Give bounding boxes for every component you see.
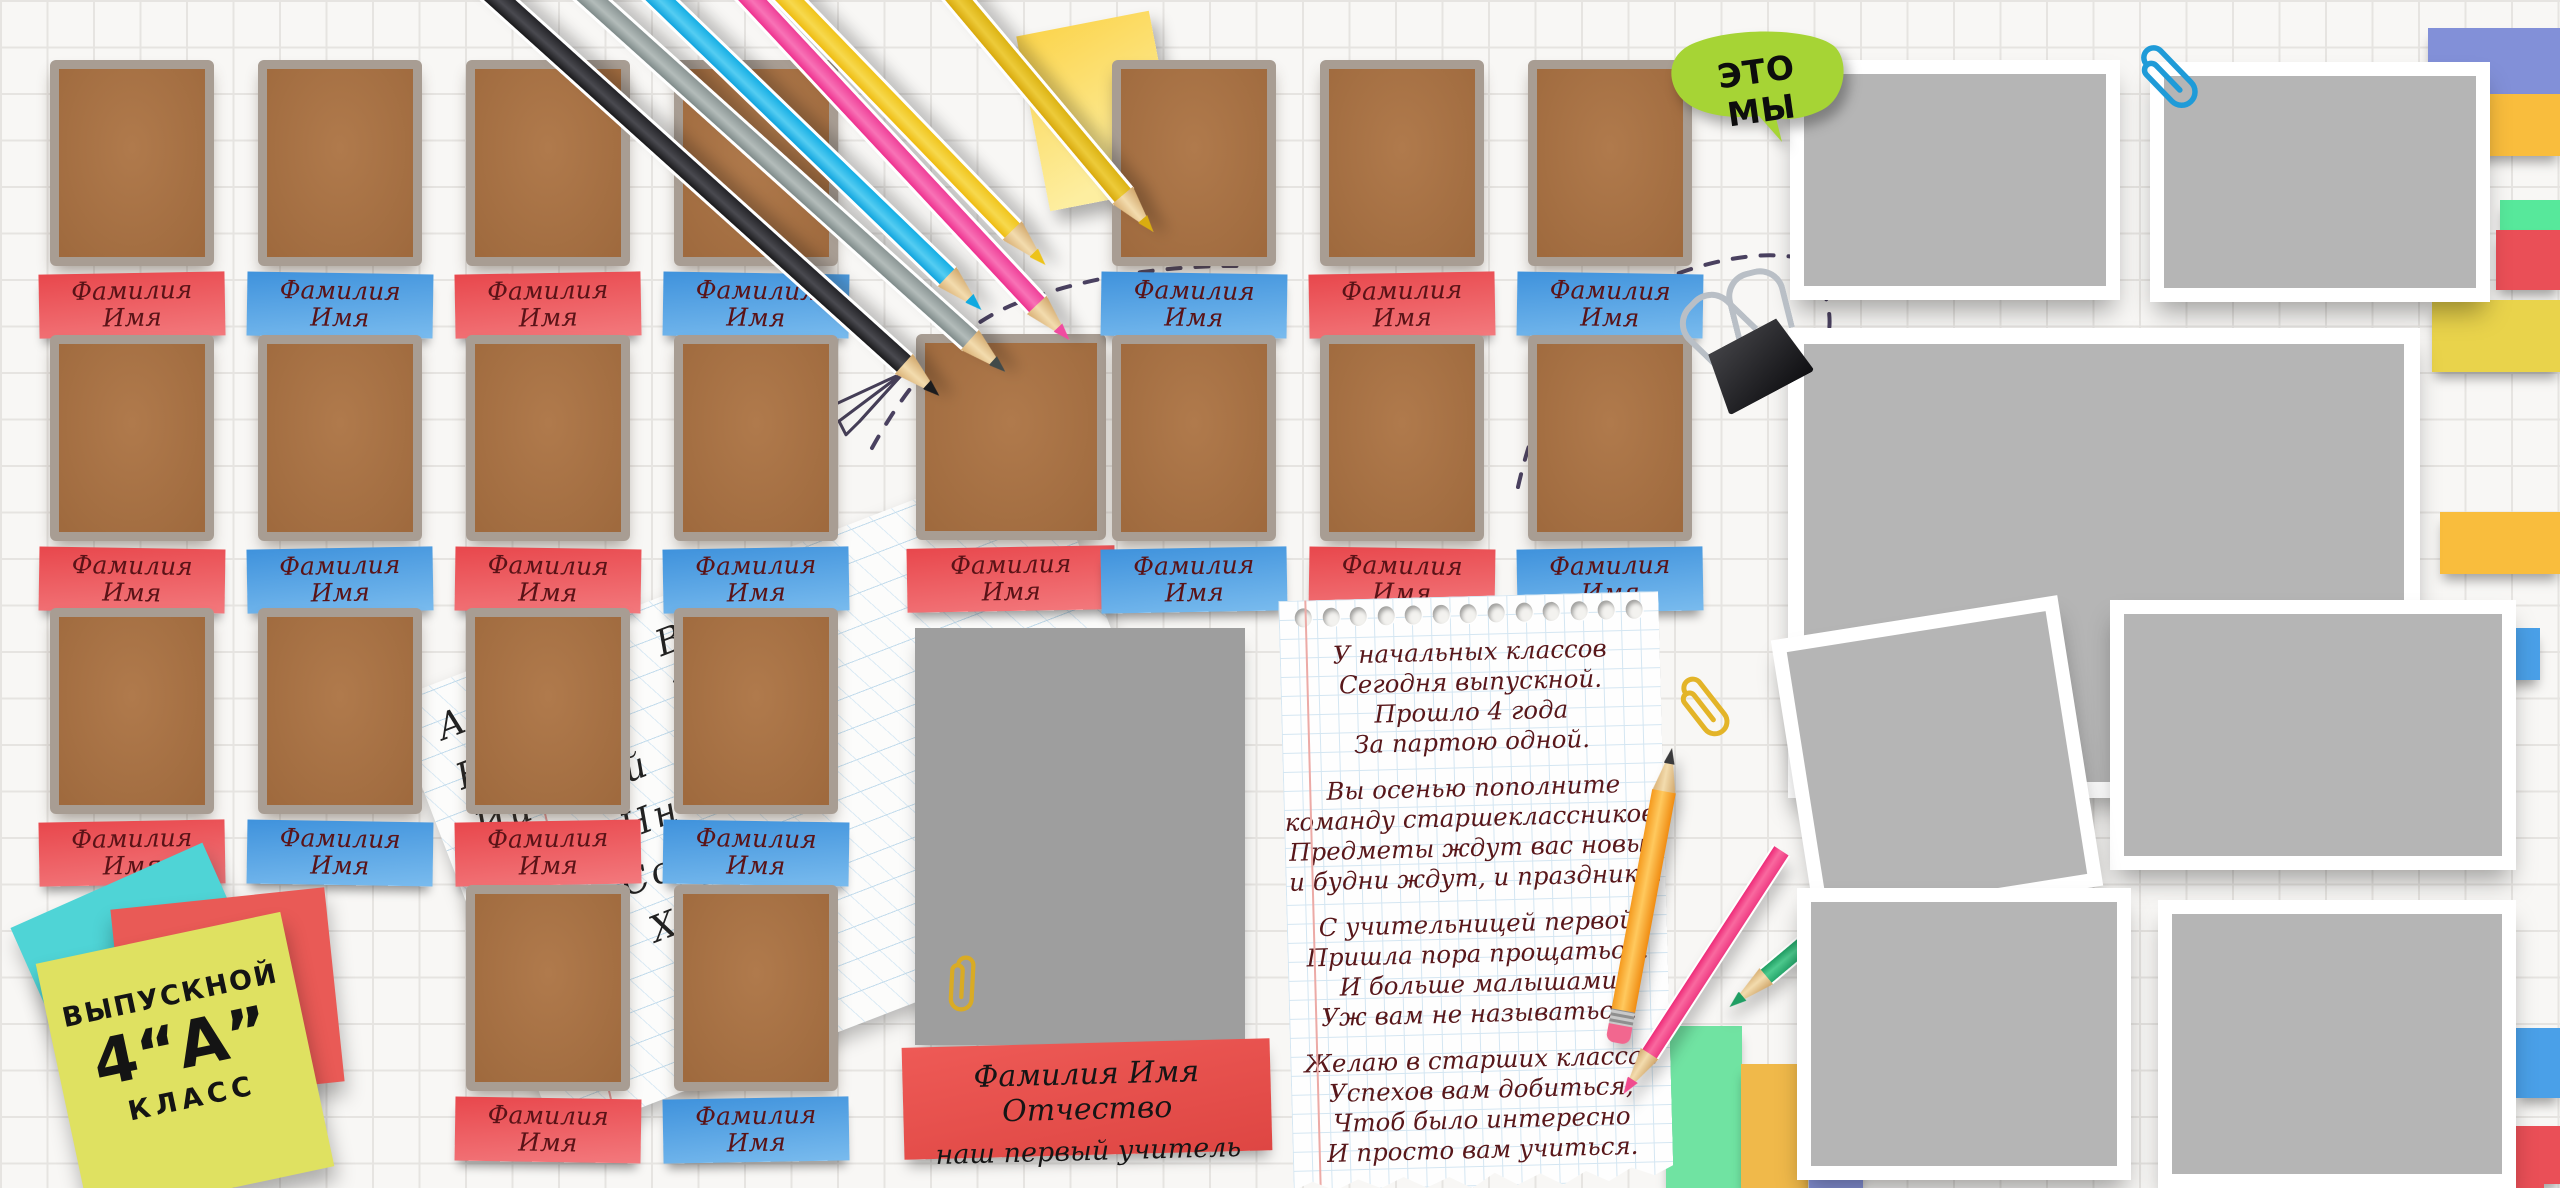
class-photo-placeholder[interactable] (1811, 902, 2117, 1166)
student-surname: Фамилия (663, 550, 849, 580)
student-photo-placeholder[interactable] (674, 885, 838, 1091)
student-name-tag[interactable]: ФамилияИмя (38, 271, 225, 338)
student-name-tag[interactable]: ФамилияИмя (906, 545, 1115, 613)
student-name: Имя (39, 302, 225, 332)
student-photo-placeholder[interactable] (466, 885, 630, 1091)
index-tab-orange (2440, 512, 2560, 574)
student-name: Имя (663, 851, 849, 881)
student-name-tag[interactable]: ФамилияИмя (662, 546, 849, 613)
student-photo-placeholder[interactable] (1112, 335, 1276, 541)
student-name: Имя (455, 302, 641, 332)
student-surname: Фамилия (663, 824, 849, 854)
student-surname: Фамилия (455, 1101, 641, 1131)
student-surname: Фамилия (455, 823, 641, 853)
student-name: Имя (1309, 302, 1495, 332)
student-photo-slot[interactable]: ФамилияИмя (258, 608, 422, 885)
class-photo-placeholder[interactable] (2164, 76, 2476, 288)
student-surname: Фамилия (1517, 276, 1703, 306)
class-photo-placeholder[interactable] (2172, 914, 2502, 1174)
student-name: Имя (247, 851, 433, 881)
student-surname: Фамилия (39, 551, 225, 581)
student-surname: Фамилия (455, 275, 641, 305)
student-name-tag[interactable]: ФамилияИмя (454, 271, 641, 338)
student-photo-slot[interactable]: ФамилияИмя (674, 335, 838, 612)
poem-stanza: Желаю в старших классах Успехов вам доби… (1290, 1040, 1673, 1170)
student-surname: Фамилия (39, 275, 225, 305)
class-photo-frame-tilted[interactable] (1771, 595, 2103, 931)
student-surname: Фамилия (663, 1100, 849, 1130)
student-photo-placeholder[interactable] (50, 608, 214, 814)
poem-stanza: У начальных классов Сегодня выпускной. П… (1279, 632, 1662, 762)
student-name: Имя (247, 577, 433, 607)
student-photo-placeholder[interactable] (258, 608, 422, 814)
poem-stanza: Вы осенью пополните команду старшеклассн… (1283, 768, 1666, 898)
index-tab-green (2500, 200, 2560, 230)
student-photo-placeholder[interactable] (674, 335, 838, 541)
poem-text: У начальных классов Сегодня выпускной. П… (1279, 632, 1673, 1170)
class-photo-frame[interactable] (2158, 900, 2516, 1188)
student-name-tag[interactable]: ФамилияИмя (662, 1096, 849, 1163)
student-surname: Фамилия (1101, 276, 1287, 306)
student-photo-slot[interactable]: ФамилияИмя (674, 608, 838, 885)
student-photo-slot[interactable]: ФамилияИмя (916, 334, 1106, 611)
student-photo-placeholder[interactable] (1112, 60, 1276, 266)
student-name: Имя (247, 303, 433, 333)
student-surname: Фамилия (247, 550, 433, 580)
student-name-tag[interactable]: ФамилияИмя (247, 820, 434, 887)
student-name: Имя (39, 578, 225, 608)
student-photo-slot[interactable]: ФамилияИмя (1320, 335, 1484, 612)
student-name-tag[interactable]: ФамилияИмя (1100, 546, 1287, 613)
class-photo-frame[interactable] (1797, 888, 2131, 1180)
student-name-tag[interactable]: ФамилияИмя (247, 272, 434, 339)
student-photo-placeholder[interactable] (1320, 335, 1484, 541)
student-photo-placeholder[interactable] (466, 335, 630, 541)
student-photo-slot[interactable]: ФамилияИмя (466, 608, 630, 885)
student-name: Имя (1101, 303, 1287, 333)
student-name-tag[interactable]: ФамилияИмя (39, 547, 226, 614)
index-tab-green (1666, 1026, 1742, 1188)
student-name: Имя (1101, 577, 1287, 607)
student-name: Имя (455, 1128, 641, 1158)
student-photo-placeholder[interactable] (50, 335, 214, 541)
student-name: Имя (663, 577, 849, 607)
student-photo-slot[interactable]: ФамилияИмя (674, 885, 838, 1162)
teacher-full-name: Фамилия Имя Отчество (902, 1052, 1272, 1132)
student-photo-slot[interactable]: ФамилияИмя (50, 60, 214, 337)
student-name-tag[interactable]: ФамилияИмя (455, 547, 642, 614)
student-name: Имя (907, 576, 1115, 607)
student-surname: Фамилия (907, 549, 1115, 580)
student-photo-slot[interactable]: ФамилияИмя (466, 885, 630, 1162)
student-surname: Фамилия (247, 824, 433, 854)
paperclip-icon (944, 937, 983, 1029)
student-photo-placeholder[interactable] (50, 60, 214, 266)
class-photo-frame[interactable] (2110, 600, 2516, 870)
student-surname: Фамилия (1101, 550, 1287, 580)
student-photo-placeholder[interactable] (674, 608, 838, 814)
student-photo-placeholder[interactable] (1528, 335, 1692, 541)
student-surname: Фамилия (455, 551, 641, 581)
class-photo-placeholder[interactable] (1787, 611, 2087, 915)
index-tab-red (2516, 1126, 2560, 1184)
index-tab-blue (2516, 1028, 2560, 1098)
student-surname: Фамилия (1517, 550, 1703, 580)
student-photo-slot[interactable]: ФамилияИмя (258, 60, 422, 337)
student-photo-slot[interactable]: ФамилияИмя (50, 335, 214, 612)
student-name: Имя (663, 1127, 849, 1157)
student-name-tag[interactable]: ФамилияИмя (1101, 272, 1288, 339)
student-photo-placeholder[interactable] (466, 608, 630, 814)
student-photo-placeholder[interactable] (1320, 60, 1484, 266)
student-photo-placeholder[interactable] (258, 335, 422, 541)
album-spread: Аа Бб Вв Зз Ее Ёё Жж Ии Йй Лл Мм Нн Рр С… (0, 0, 2560, 1188)
class-photo-placeholder[interactable] (2124, 614, 2502, 856)
student-name-tag[interactable]: ФамилияИмя (454, 819, 641, 886)
student-name-tag[interactable]: ФамилияИмя (1308, 271, 1495, 338)
student-name: Имя (455, 578, 641, 608)
student-photo-placeholder[interactable] (258, 60, 422, 266)
student-name-tag[interactable]: ФамилияИмя (455, 1097, 642, 1164)
student-photo-slot[interactable]: ФамилияИмя (1528, 335, 1692, 612)
student-surname: Фамилия (1309, 275, 1495, 305)
student-photo-slot[interactable]: ФамилияИмя (1320, 60, 1484, 337)
student-photo-slot[interactable]: ФамилияИмя (258, 335, 422, 612)
poem-note: У начальных классов Сегодня выпускной. П… (1278, 591, 1673, 1188)
student-surname: Фамилия (1309, 551, 1495, 581)
student-photo-slot[interactable]: ФамилияИмя (1112, 335, 1276, 612)
index-tab-yellow (2432, 300, 2560, 372)
index-tab-red (2496, 230, 2560, 290)
student-photo-slot[interactable]: ФамилияИмя (466, 335, 630, 612)
student-name-tag[interactable]: ФамилияИмя (663, 820, 850, 887)
teacher-name-card[interactable]: Фамилия Имя Отчество наш первый учитель (902, 1038, 1273, 1160)
student-name-tag[interactable]: ФамилияИмя (246, 546, 433, 613)
student-photo-slot[interactable]: ФамилияИмя (50, 608, 214, 885)
student-name: Имя (455, 850, 641, 880)
student-surname: Фамилия (247, 276, 433, 306)
